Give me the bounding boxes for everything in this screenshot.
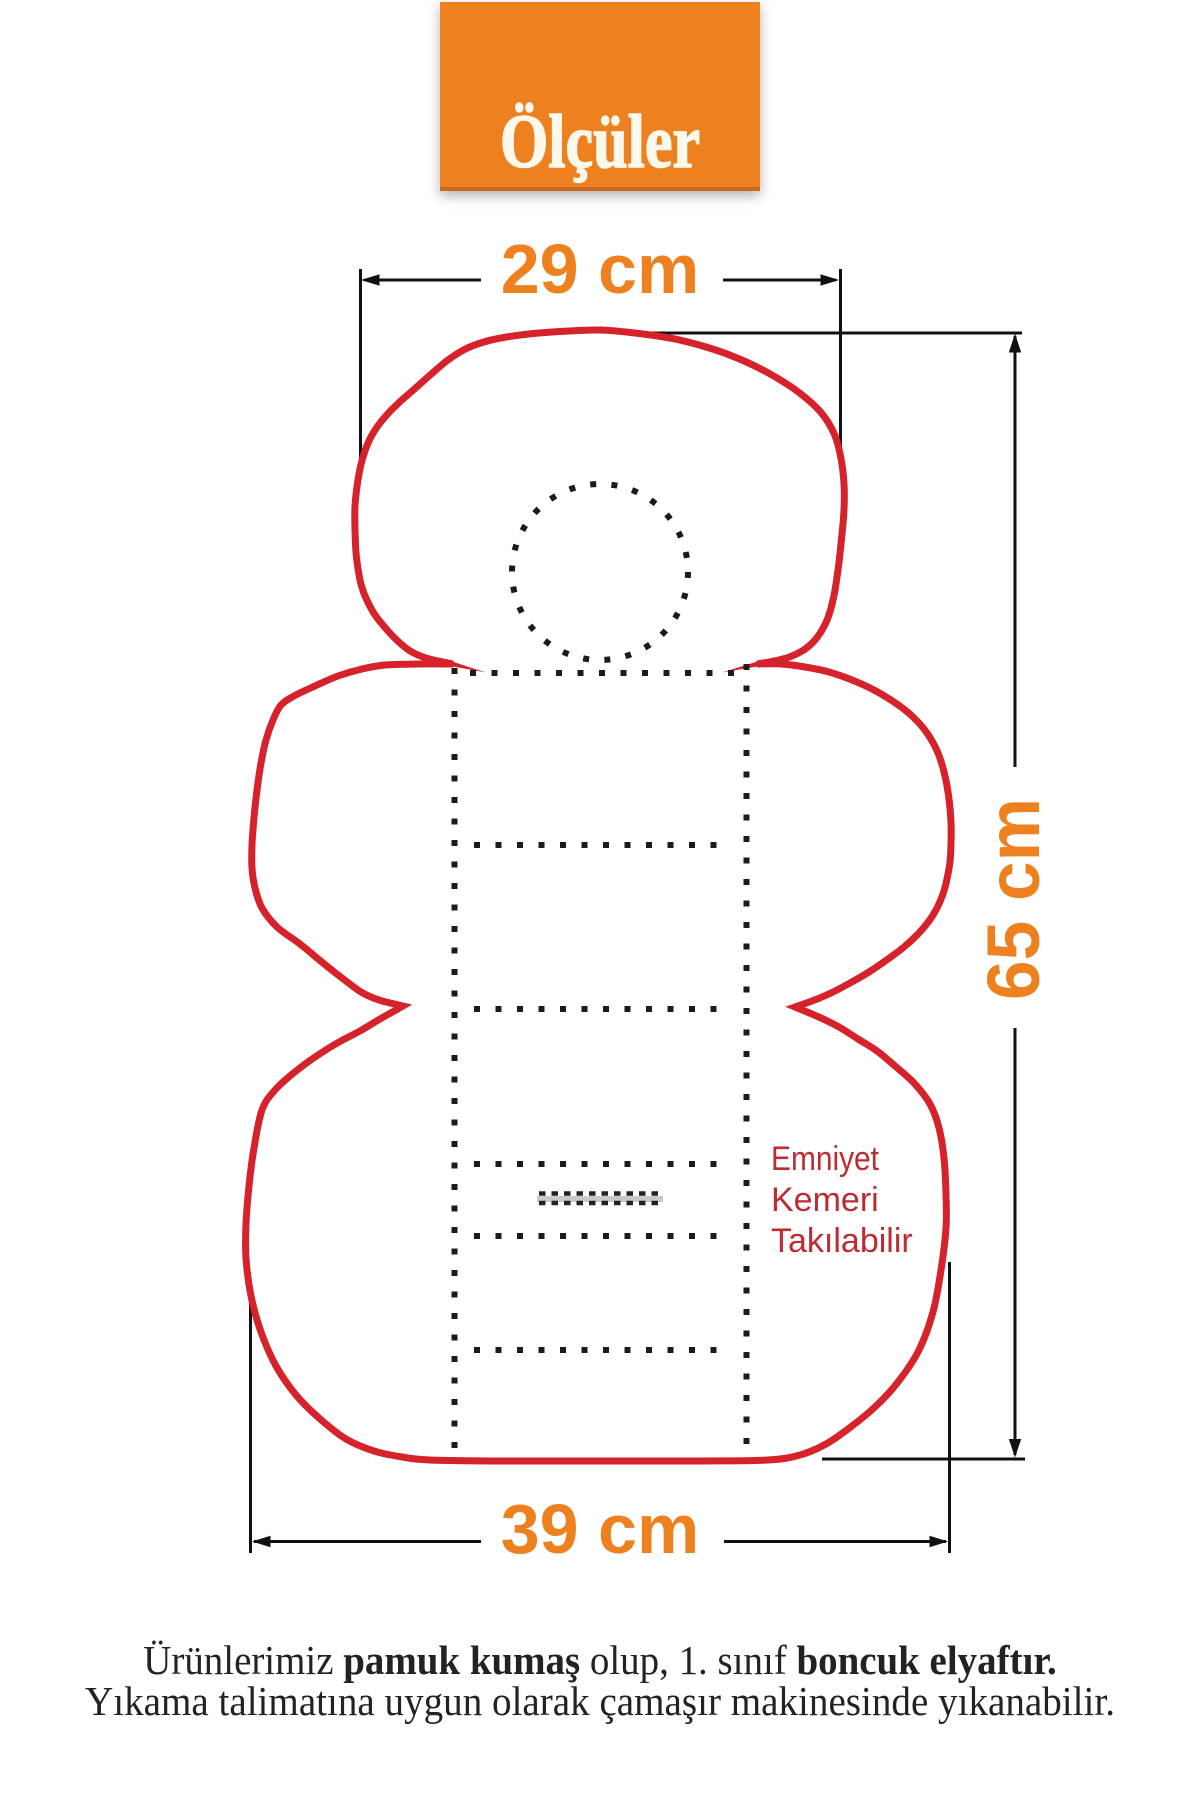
- svg-text:Takılabilir: Takılabilir: [771, 1222, 913, 1260]
- svg-text:65 cm: 65 cm: [972, 798, 1055, 1000]
- svg-text:29 cm: 29 cm: [501, 230, 699, 308]
- svg-text:Ürünlerimiz pamuk kumaş olup,: Ürünlerimiz pamuk kumaş olup, 1. sınıf b…: [143, 1637, 1057, 1683]
- svg-text:Ölçüler: Ölçüler: [500, 100, 700, 184]
- svg-text:Yıkama talimatına uygun olarak: Yıkama talimatına uygun olarak çamaşır m…: [85, 1678, 1115, 1724]
- svg-text:Kemeri: Kemeri: [771, 1181, 879, 1219]
- svg-text:39 cm: 39 cm: [501, 1490, 699, 1568]
- svg-text:Emniyet: Emniyet: [771, 1140, 879, 1178]
